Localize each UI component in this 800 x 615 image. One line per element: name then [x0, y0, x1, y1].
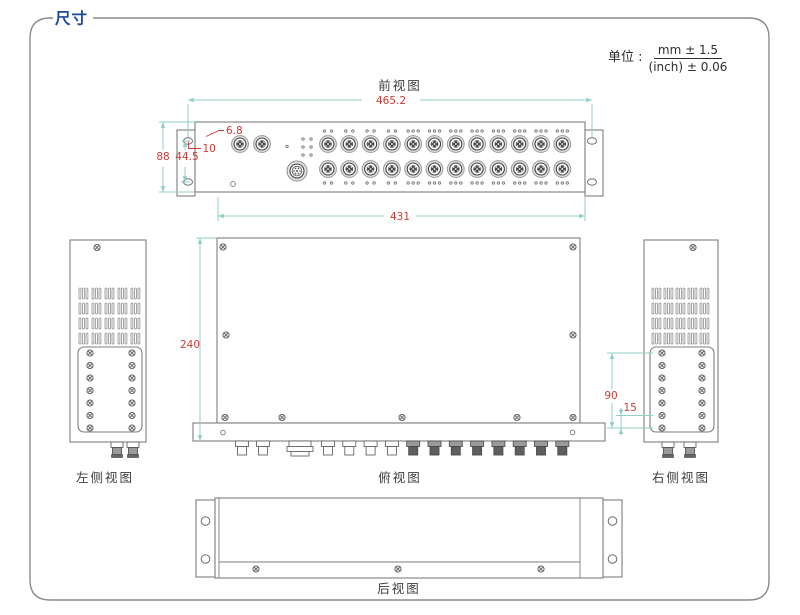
rear-body [215, 498, 603, 578]
dim-screw-span-value: 90 [604, 390, 617, 402]
rear-right-ear-hole-top [608, 517, 617, 526]
rear-left-ear [196, 500, 215, 577]
top-view-chassis [217, 238, 580, 423]
right-side-view-label: 右侧视图 [652, 470, 710, 485]
dim-hole-pitch-value: 10 [203, 143, 216, 155]
unit-tolerance-block: 单位 : mm ± 1.5 (inch) ± 0.06 [608, 43, 727, 74]
rear-right-ear [603, 500, 622, 577]
rear-view: 后视图 [196, 498, 622, 596]
unit-mm-tolerance: mm ± 1.5 [658, 43, 718, 57]
top-view: 240 俯视图 [180, 238, 605, 485]
dim-depth: 240 [180, 238, 217, 441]
dimension-drawing-page: 尺寸 单位 : mm ± 1.5 (inch) ± 0.06 前视图 465.2… [0, 0, 800, 615]
dim-body-width: 431 [218, 197, 585, 223]
dim-depth-value: 240 [180, 339, 200, 351]
left-side-view-label: 左侧视图 [76, 470, 134, 485]
dim-overall-width-value: 465.2 [376, 95, 406, 107]
dim-screw-gap-value: 15 [624, 402, 637, 414]
rear-view-label: 后视图 [377, 581, 421, 596]
front-panel-body [195, 122, 585, 192]
right-side-view: 右侧视图 90 15 [604, 240, 718, 485]
dim-body-width-value: 431 [390, 211, 410, 223]
front-right-ear-hole-top [588, 138, 597, 144]
dimension-drawing-canvas: 尺寸 单位 : mm ± 1.5 (inch) ± 0.06 前视图 465.2… [0, 0, 800, 615]
rear-left-ear-hole-top [201, 517, 210, 526]
top-view-front-bar [193, 423, 605, 441]
section-title: 尺寸 [55, 9, 88, 28]
dim-panel-height-value: 88 [156, 151, 169, 163]
front-right-ear-hole-bottom [588, 179, 597, 185]
unit-inch-tolerance: (inch) ± 0.06 [649, 60, 728, 74]
unit-label: 单位 : [608, 50, 643, 65]
dim-hole-offset-value: 6.8 [226, 125, 243, 137]
front-view-label: 前视图 [378, 78, 422, 93]
top-view-label: 俯视图 [378, 470, 422, 485]
dim-hole-spacing-value: 44.5 [175, 151, 198, 163]
rear-left-ear-hole-bottom [201, 555, 210, 564]
left-side-view: 左侧视图 [70, 240, 146, 485]
rear-right-ear-hole-bottom [608, 555, 617, 564]
front-view: 前视图 465.2 6.8 10 88 [156, 78, 603, 223]
